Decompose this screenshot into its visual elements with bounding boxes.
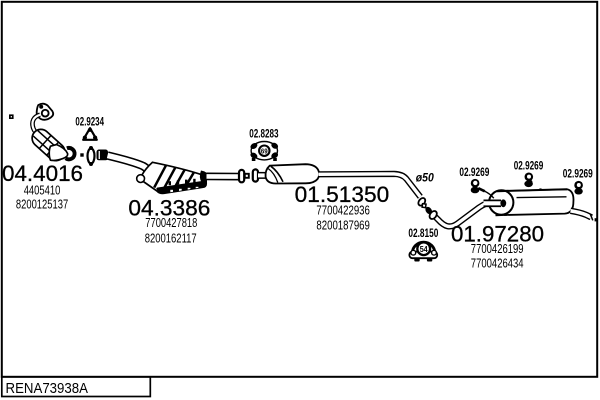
svg-text:7700426434: 7700426434 [471,257,524,271]
svg-text:02.9269: 02.9269 [563,166,593,180]
svg-text:8200187969: 8200187969 [316,219,370,233]
svg-text:02.9269: 02.9269 [514,158,544,172]
svg-text:02.8150: 02.8150 [408,226,438,240]
svg-text:7700427818: 7700427818 [145,216,197,230]
svg-text:8200162117: 8200162117 [145,231,197,245]
svg-text:ø50: ø50 [416,172,435,184]
svg-text:04.4016: 04.4016 [2,161,83,186]
svg-text:8200125137: 8200125137 [16,198,68,212]
svg-text:69: 69 [261,146,268,155]
svg-text:7700426199: 7700426199 [471,242,524,256]
svg-text:7700422936: 7700422936 [316,204,370,218]
svg-text:02.9269: 02.9269 [459,165,489,179]
svg-text:4405410: 4405410 [24,184,61,198]
svg-text:54: 54 [420,245,428,254]
svg-text:02.9234: 02.9234 [75,114,104,128]
svg-text:02.8283: 02.8283 [249,126,279,140]
svg-text:RENA73938A: RENA73938A [6,381,89,397]
